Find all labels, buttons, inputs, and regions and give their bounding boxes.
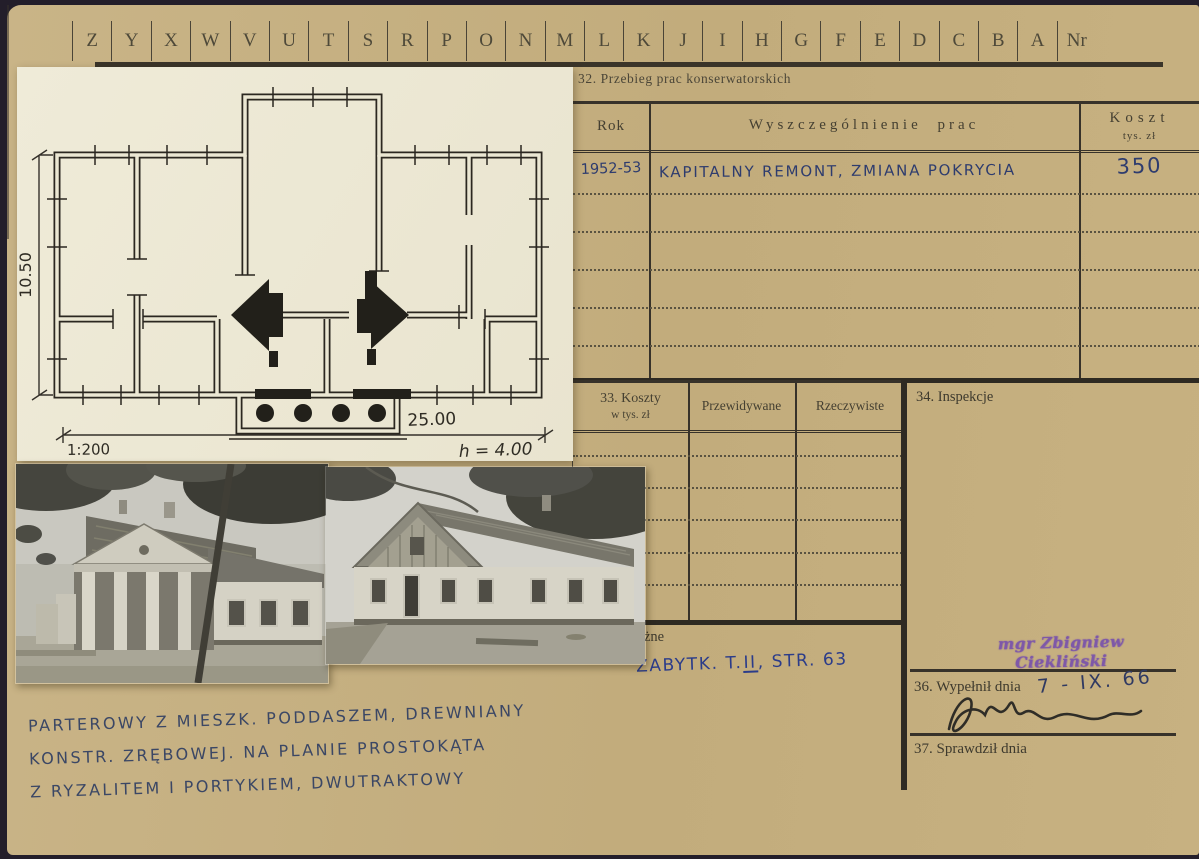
record-card: ZYXWVUTSRPONMLKJIHGFEDCBANr 32. Przebieg… — [7, 5, 1199, 855]
index-letter-J: J — [663, 21, 702, 61]
index-letter-O: O — [466, 21, 505, 61]
index-letter-W: W — [190, 21, 229, 61]
index-letter-X: X — [151, 21, 190, 61]
t32-header-prace: Wyszczególnienie prac — [649, 117, 1079, 134]
empty-row-rule — [573, 269, 1199, 271]
t33-header-koszty: 33. Koszty — [573, 391, 688, 407]
plan-building-height: h = 4.00 — [458, 439, 532, 461]
signature — [935, 685, 1149, 739]
floor-plan-drawing: 10.50 25.00 1:200 h = 4.00 — [17, 67, 573, 461]
t33-header-rule — [573, 430, 905, 433]
empty-row-rule — [573, 345, 1199, 347]
t32-header-rok: Rok — [573, 118, 649, 135]
section37-label: 37. Sprawdził dnia — [914, 741, 1027, 758]
building-description: PARTEROWY Z MIESZK. PODDASZEM, DREWNIANY… — [28, 693, 571, 809]
entry-cost: 350 — [1079, 152, 1199, 180]
t32-header-koszt-unit: tys. zł — [1079, 130, 1199, 142]
index-letter-S: S — [348, 21, 387, 61]
plan-dim-width: 25.00 — [407, 409, 456, 431]
t33-header-koszty-sub: w tys. zł — [573, 409, 688, 421]
empty-row-rule — [573, 455, 905, 457]
line-above-37 — [910, 733, 1176, 736]
note-roman-numeral: II — [742, 655, 758, 673]
entry-works: KAPITALNY REMONT, ZMIANA POKRYCIA — [659, 161, 1016, 181]
section34-title: 34. Inspekcje — [916, 389, 993, 406]
index-letter-G: G — [781, 21, 820, 61]
index-letter-F: F — [820, 21, 859, 61]
t33-header-rzeczywiste: Rzeczywiste — [795, 398, 905, 414]
plan-dim-height: 10.50 — [17, 252, 35, 298]
index-letter-V: V — [230, 21, 269, 61]
section32-table: Rok Wyszczególnienie prac Koszt tys. zł … — [572, 101, 1199, 383]
t32-header-koszt: Koszt — [1079, 110, 1199, 127]
index-letter-R: R — [387, 21, 426, 61]
index-letter-E: E — [860, 21, 899, 61]
t32-col-divider-1 — [649, 104, 651, 378]
column-divider — [901, 380, 907, 790]
t32-header-rule — [573, 150, 1199, 153]
empty-row-rule — [573, 231, 1199, 233]
index-letter-C: C — [939, 21, 978, 61]
index-letter-B: B — [978, 21, 1017, 61]
plan-scale: 1:200 — [67, 440, 111, 459]
index-letter-P: P — [427, 21, 466, 61]
index-letter-A: A — [1017, 21, 1056, 61]
floor-plan-sheet: 10.50 25.00 1:200 h = 4.00 — [17, 67, 573, 461]
index-letter-U: U — [269, 21, 308, 61]
note-prefix: ZABYTK. T. — [636, 653, 743, 677]
index-letter-I: I — [702, 21, 741, 61]
index-letter-Z: Z — [72, 21, 111, 61]
note-suffix: , STR. 63 — [757, 649, 848, 672]
index-letter-N: N — [505, 21, 544, 61]
index-letter-M: M — [545, 21, 584, 61]
section32-title: 32. Przebieg prac konserwatorskich — [578, 71, 791, 87]
empty-row-rule — [573, 307, 1199, 309]
index-letter-L: L — [584, 21, 623, 61]
empty-row-rule — [573, 193, 1199, 195]
index-letter-T: T — [308, 21, 347, 61]
inventory-note: ZABYTK. T.II, STR. 63 — [636, 649, 848, 676]
t33-header-przewidywane: Przewidywane — [688, 398, 795, 414]
section34-right-border — [7, 5, 9, 239]
index-letter-D: D — [899, 21, 938, 61]
alphabet-index-strip: ZYXWVUTSRPONMLKJIHGFEDCBANr — [72, 21, 1119, 61]
index-letter-H: H — [742, 21, 781, 61]
index-letter-K: K — [623, 21, 662, 61]
photo-front-portico-view — [15, 463, 329, 684]
index-letter-Y: Y — [111, 21, 150, 61]
entry-year: 1952-53 — [573, 160, 650, 179]
nr-cell: Nr — [1057, 21, 1119, 61]
photo-gable-side-view — [325, 466, 646, 665]
t32-col-divider-2 — [1079, 104, 1081, 378]
